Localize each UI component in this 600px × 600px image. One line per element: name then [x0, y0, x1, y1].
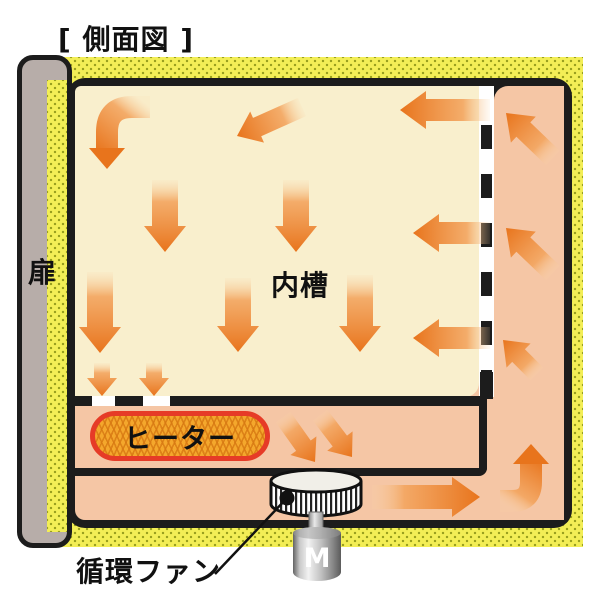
diagram-title: [ 側面図 ]: [58, 18, 194, 58]
heater-label: ヒーター: [124, 417, 236, 456]
chamber-floor: [75, 396, 486, 406]
heater: ヒーター: [90, 411, 270, 461]
right-duct: [494, 86, 564, 520]
right-wall-solid-segment: [480, 372, 493, 399]
door-insulation-strip: [47, 80, 67, 532]
floor-segment: [75, 396, 92, 406]
inner-tank-label: 内槽: [271, 264, 329, 304]
wall-dashes: [481, 125, 492, 397]
heater-zone-right-wall: [479, 397, 487, 474]
circulation-fan-label: 循環ファン: [76, 550, 221, 590]
floor-segment: [115, 396, 143, 406]
door-label: 扉: [28, 251, 56, 291]
motor-label: M: [293, 543, 341, 574]
heater-zone-bottom-wall: [75, 468, 487, 476]
perforated-right-wall: [479, 86, 494, 397]
side-view-diagram: { "title": "[ 側面図 ]", "labels": { "door"…: [0, 0, 600, 600]
floor-segment: [170, 396, 486, 406]
inner-tank-chamber: [75, 86, 479, 397]
